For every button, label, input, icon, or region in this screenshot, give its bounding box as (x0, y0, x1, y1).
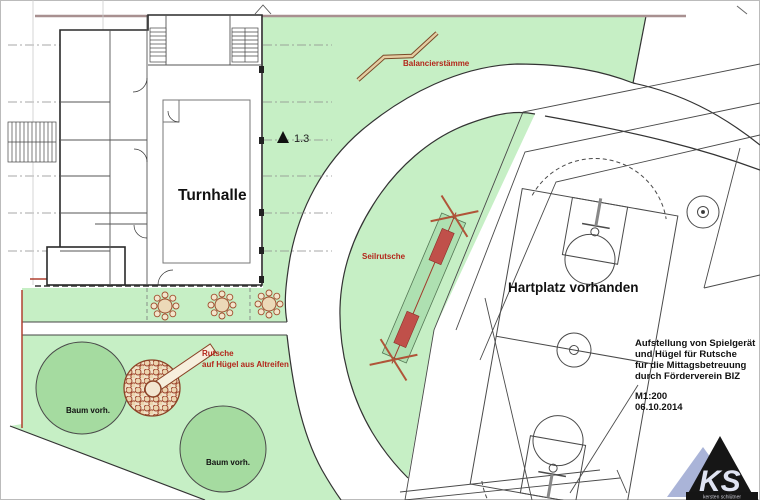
label-rutsche-line2: auf Hügel aus Altreifen (202, 360, 289, 369)
building-annex (47, 247, 125, 285)
logo-name: kersten schlütner (703, 495, 741, 500)
label-tree-2: Baum vorh. (206, 458, 250, 467)
label-tree-1: Baum vorh. (66, 406, 110, 415)
title-date: 06.10.2014 (635, 402, 683, 413)
slide-platform (145, 381, 161, 397)
picnic-table-1 (151, 292, 179, 320)
label-hartplatz: Hartplatz vorhanden (508, 280, 639, 295)
label-rutsche-line1: Rutsche (202, 349, 234, 358)
picnic-table-3 (255, 290, 283, 318)
title-scale: M1:200 (635, 391, 667, 402)
elevation-value: 1.3 (294, 133, 309, 145)
title-line-4: durch Förderverein BIZ (635, 371, 740, 382)
title-line-2: und Hügel für Rutsche (635, 349, 737, 360)
title-line-3: für die Mittagsbetreuung (635, 360, 747, 371)
site-plan-drawing: 1.3 Turnhalle Hartplatz vorhanden Balanc… (0, 0, 760, 500)
site-plan-page: 1.3 Turnhalle Hartplatz vorhanden Balanc… (0, 0, 760, 500)
label-turnhalle: Turnhalle (178, 187, 247, 204)
title-line-1: Aufstellung von Spielgerät (635, 338, 756, 349)
label-balancierstaemme: Balancierstämme (403, 59, 470, 68)
picnic-table-2 (208, 291, 236, 319)
tree-2 (180, 406, 266, 492)
label-seilrutsche: Seilrutsche (362, 252, 406, 261)
tree-1 (36, 342, 128, 434)
